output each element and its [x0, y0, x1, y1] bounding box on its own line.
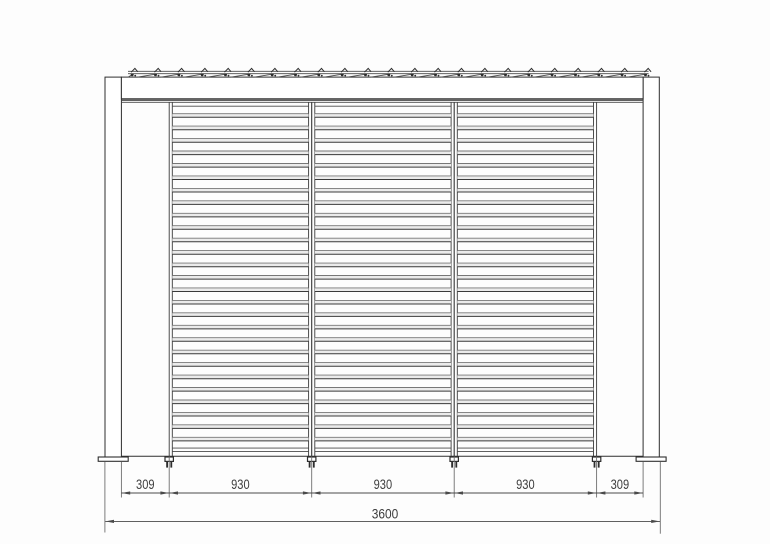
svg-text:309: 309 — [136, 477, 155, 492]
svg-text:309: 309 — [611, 477, 630, 492]
svg-text:930: 930 — [231, 477, 250, 492]
svg-text:3600: 3600 — [372, 506, 399, 521]
svg-text:930: 930 — [374, 477, 393, 492]
svg-text:930: 930 — [516, 477, 535, 492]
